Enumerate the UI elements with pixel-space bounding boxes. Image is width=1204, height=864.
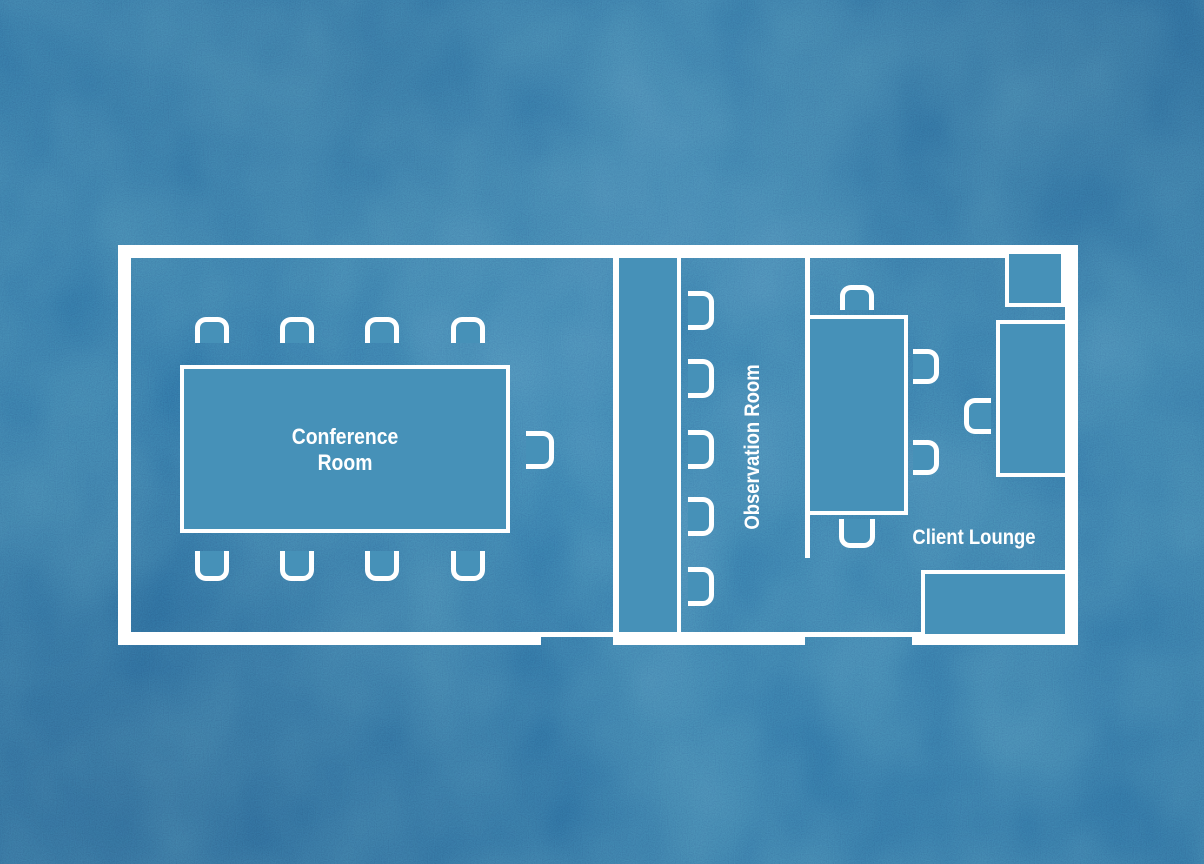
conference-room-label-line1: Conference — [292, 424, 399, 450]
observation-room-label: Observation Room — [703, 297, 803, 597]
observation-room-label-text: Observation Room — [741, 364, 765, 529]
client-lounge-label: Client Lounge — [874, 520, 1074, 556]
wall-left — [118, 245, 131, 645]
lounge-sofa — [996, 320, 1069, 477]
observation-counter — [615, 254, 681, 636]
conference-chair — [451, 551, 485, 581]
blueprint-canvas: Conference Room Observation Room Client … — [0, 0, 1204, 864]
conference-chair — [451, 317, 485, 343]
lounge-credenza — [921, 570, 1069, 638]
wall-top — [118, 245, 1078, 258]
lounge-table — [806, 315, 908, 515]
conference-chair — [280, 317, 314, 343]
wall-bottom-left — [118, 632, 541, 645]
lounge-chair — [840, 285, 874, 310]
lounge-chair — [964, 398, 991, 434]
door-opening-conference — [541, 632, 617, 637]
conference-chair — [280, 551, 314, 581]
conference-room-label-line2: Room — [318, 450, 373, 476]
lounge-chair — [913, 349, 939, 384]
client-lounge-label-text: Client Lounge — [912, 526, 1035, 550]
lounge-side-table — [1005, 250, 1065, 307]
conference-chair — [195, 551, 229, 581]
conference-chair — [365, 317, 399, 343]
floor-plan: Conference Room Observation Room Client … — [0, 0, 1204, 864]
lounge-chair — [839, 519, 875, 548]
conference-room-label: Conference Room — [257, 410, 433, 490]
conference-chair — [526, 431, 554, 469]
door-opening-lounge — [805, 632, 912, 637]
lounge-chair — [913, 440, 939, 475]
conference-chair — [195, 317, 229, 343]
conference-chair — [365, 551, 399, 581]
